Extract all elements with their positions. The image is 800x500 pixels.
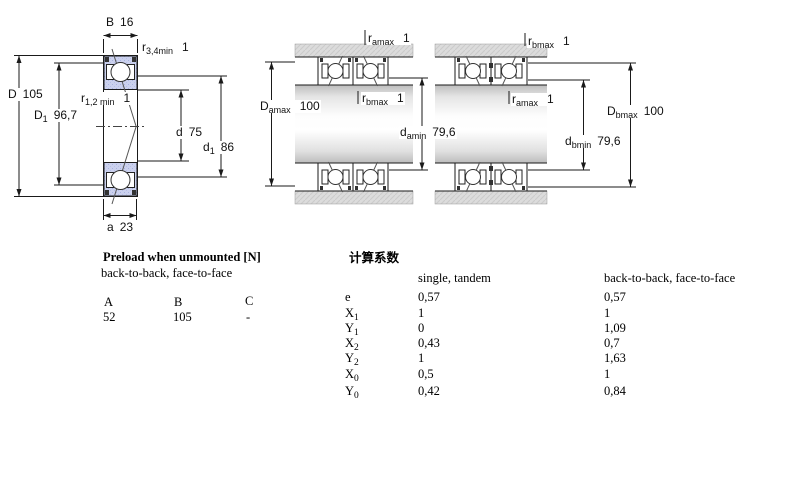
- housing-bottom: [435, 191, 547, 204]
- factor-value-single: 1: [418, 351, 424, 365]
- dim-value: 1: [547, 92, 554, 106]
- dim-base: d: [400, 125, 407, 139]
- factor-value-single: 0,57: [418, 290, 440, 304]
- housing-top: [295, 44, 413, 57]
- factors-title: 计算系数: [349, 251, 399, 265]
- dim-base: D: [607, 104, 616, 118]
- dim-sub: amax: [372, 37, 394, 47]
- factor-row-label: Y2: [345, 351, 359, 365]
- dim-sub: 1: [43, 114, 48, 124]
- dim-value: 79,6: [597, 134, 620, 148]
- preload-value-B: 105: [173, 310, 192, 324]
- factor-value-btb: 1: [604, 306, 610, 320]
- dim-sub: 1: [210, 146, 215, 156]
- factor-value-single: 1: [418, 306, 424, 320]
- factor-value-btb: 1,63: [604, 351, 626, 365]
- dim-value: 1: [124, 91, 131, 105]
- dim-D1: [54, 63, 103, 185]
- dim-value: 16: [120, 15, 133, 29]
- dim-label-damin: damin79,6: [399, 126, 457, 139]
- factor-row-label: X1: [345, 306, 359, 320]
- factors-col1-header: single, tandem: [418, 271, 491, 285]
- factors-col2-header: back-to-back, face-to-face: [604, 271, 735, 285]
- dim-base: d: [565, 134, 572, 148]
- dim-sub: amax: [516, 98, 538, 108]
- dim-sub: amin: [407, 131, 427, 141]
- ball-bottom: [111, 171, 130, 190]
- factor-row-label: Y1: [345, 321, 359, 335]
- dim-label-D1: D196,7: [33, 109, 78, 122]
- preload-col-B: B: [174, 295, 182, 309]
- factor-value-btb: 0,7: [604, 336, 620, 350]
- dim-label-d1: d186: [202, 141, 235, 154]
- dim-value: 1: [563, 34, 570, 48]
- dim-base: D: [8, 87, 17, 101]
- bearing-datasheet-page: B16 r3,4min1 D105 r1,2 min1 D196,7 d75 d…: [0, 0, 800, 500]
- dim-label-d: d75: [175, 126, 203, 139]
- dim-value: 100: [300, 99, 320, 113]
- mounting-diagram-a: [265, 30, 428, 204]
- preload-subtitle: back-to-back, face-to-face: [101, 266, 232, 280]
- ball-top: [111, 63, 130, 82]
- dim-value: 96,7: [54, 108, 77, 122]
- factor-row-label: X0: [345, 367, 359, 381]
- dim-value: 100: [644, 104, 664, 118]
- dim-sub: bmax: [366, 97, 388, 107]
- dim-label-rbmax-b: rbmax1: [527, 35, 571, 48]
- dim-value: 1: [403, 31, 410, 45]
- dim-a: [104, 199, 137, 220]
- preload-col-A: A: [104, 295, 113, 309]
- dim-base: B: [106, 15, 114, 29]
- dim-B: [104, 33, 138, 53]
- factor-row-label: Y0: [345, 384, 359, 398]
- dim-value: 1: [397, 91, 404, 105]
- housing-bottom: [295, 191, 413, 204]
- factor-row-label: X2: [345, 336, 359, 350]
- dim-label-D: D105: [7, 88, 44, 101]
- preload-value-A: 52: [103, 310, 116, 324]
- dim-sub: 3,4min: [146, 46, 173, 56]
- dim-value: 23: [120, 220, 133, 234]
- dim-label-ramax: ramax1: [367, 32, 411, 45]
- dim-label-ramax-b: ramax1: [511, 93, 555, 106]
- dim-base: d: [203, 140, 210, 154]
- dim-label-a: a23: [106, 221, 134, 234]
- dim-label-r12min: r1,2 min1: [80, 92, 131, 105]
- dim-label-Damax: Damax100: [259, 100, 321, 113]
- dim-label-Dbmax: Dbmax100: [606, 105, 665, 118]
- dim-sub: amax: [269, 105, 291, 115]
- dim-value: 86: [221, 140, 234, 154]
- dim-base: D: [34, 108, 43, 122]
- dim-value: 79,6: [432, 125, 455, 139]
- dim-Damax: [265, 62, 295, 186]
- factor-value-btb: 1,09: [604, 321, 626, 335]
- dim-label-B: B16: [105, 16, 134, 29]
- factor-value-btb: 0,57: [604, 290, 626, 304]
- preload-title: Preload when unmounted [N]: [103, 250, 261, 264]
- mounting-diagram-b: [435, 33, 636, 204]
- dim-label-rbmax: rbmax1: [361, 92, 405, 105]
- dim-sub: bmin: [572, 140, 592, 150]
- dim-label-dbmin: dbmin79,6: [564, 135, 622, 148]
- dim-sub: 1,2 min: [85, 97, 115, 107]
- dim-base: a: [107, 220, 114, 234]
- factor-value-single: 0,5: [418, 367, 434, 381]
- factor-value-single: 0: [418, 321, 424, 335]
- factor-value-btb: 1: [604, 367, 610, 381]
- factor-value-btb: 0,84: [604, 384, 626, 398]
- factor-value-single: 0,42: [418, 384, 440, 398]
- factor-value-single: 0,43: [418, 336, 440, 350]
- dim-label-r34min: r3,4min1: [141, 41, 190, 54]
- dim-base: D: [260, 99, 269, 113]
- dim-sub: bmax: [616, 110, 638, 120]
- dim-value: 105: [23, 87, 43, 101]
- dim-base: d: [176, 125, 183, 139]
- preload-value-C: -: [246, 310, 250, 324]
- dim-value: 1: [182, 40, 189, 54]
- preload-col-C: C: [245, 294, 253, 308]
- dim-value: 75: [189, 125, 202, 139]
- dim-sub: bmax: [532, 40, 554, 50]
- factor-row-label: e: [345, 290, 351, 304]
